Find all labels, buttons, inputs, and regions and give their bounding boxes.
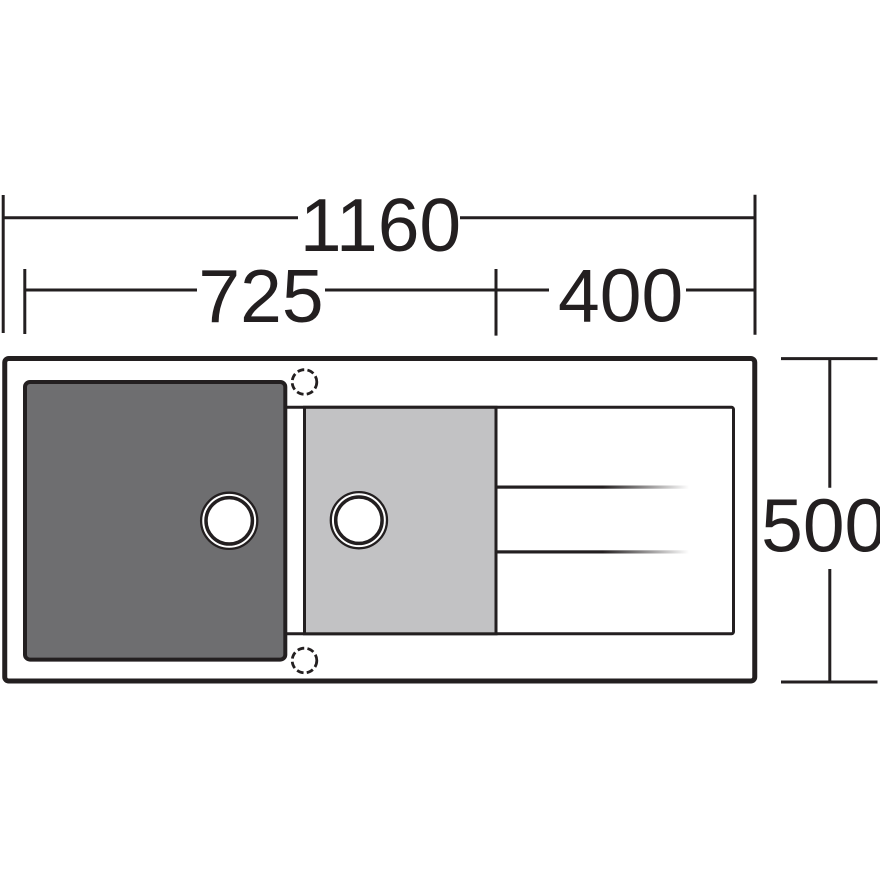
svg-text:725: 725 bbox=[198, 254, 323, 338]
svg-text:400: 400 bbox=[558, 254, 683, 338]
svg-text:500: 500 bbox=[761, 484, 880, 568]
svg-text:1160: 1160 bbox=[300, 183, 461, 267]
